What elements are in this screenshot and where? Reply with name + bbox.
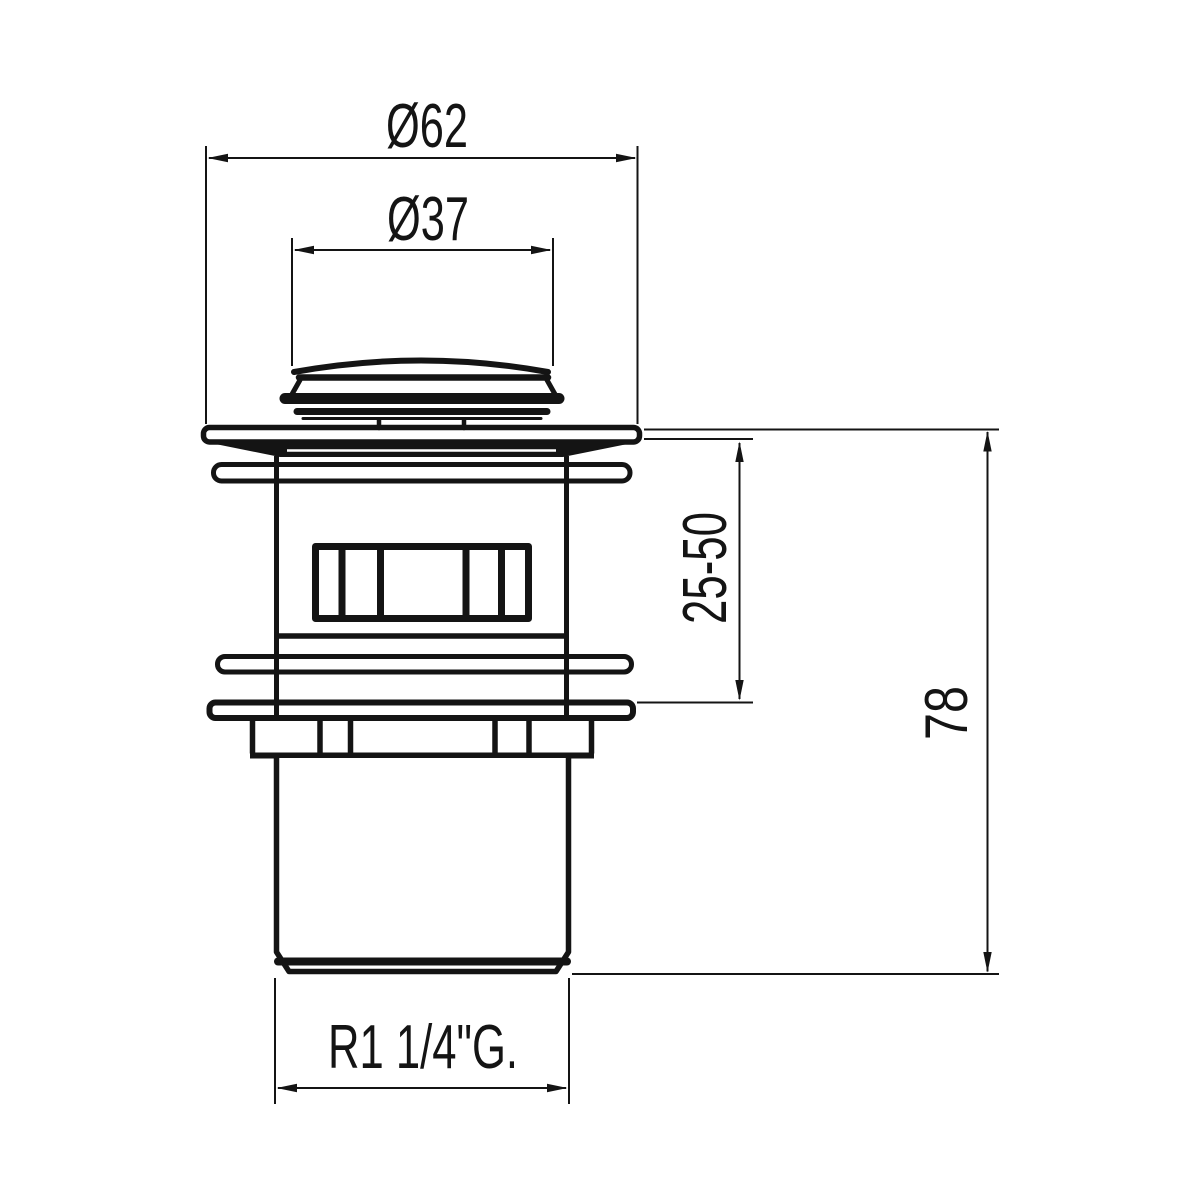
arrowhead-right <box>547 1084 568 1092</box>
technical-drawing-page: Ø62 Ø37 25-50 78 R1 1/4"G. <box>0 0 1200 1200</box>
dim-label-thread: R1 1/4"G. <box>328 1013 518 1082</box>
dimension-cap-diameter <box>292 238 553 366</box>
locknut-body <box>250 716 594 756</box>
drain-valve-part <box>204 361 640 972</box>
arrowhead-left <box>294 246 315 254</box>
dim-label-cap-diameter: Ø37 <box>387 185 469 254</box>
dim-label-outer-diameter: Ø62 <box>386 92 468 161</box>
arrowhead-up <box>735 442 743 463</box>
technical-drawing-canvas: Ø62 Ø37 25-50 78 R1 1/4"G. <box>0 0 1200 1200</box>
pop-up-cap <box>285 361 559 429</box>
threaded-tailpiece <box>277 758 569 972</box>
cap-dome-arc <box>294 361 548 373</box>
arrowhead-right <box>531 246 552 254</box>
arrowhead-right <box>616 154 637 162</box>
dim-label-overall-height: 78 <box>913 686 980 740</box>
arrowhead-left <box>277 1084 298 1092</box>
lower-gasket <box>218 657 632 673</box>
arrowhead-down <box>983 952 991 973</box>
arrowhead-left <box>208 154 229 162</box>
dim-label-clamp-range: 25-50 <box>671 512 740 624</box>
arrowhead-up <box>983 431 991 452</box>
overflow-slots <box>316 547 529 619</box>
top-flange <box>204 428 640 443</box>
arrowhead-down <box>735 680 743 701</box>
overflow-slot-frame <box>316 547 529 619</box>
locknut-washer <box>210 703 634 719</box>
